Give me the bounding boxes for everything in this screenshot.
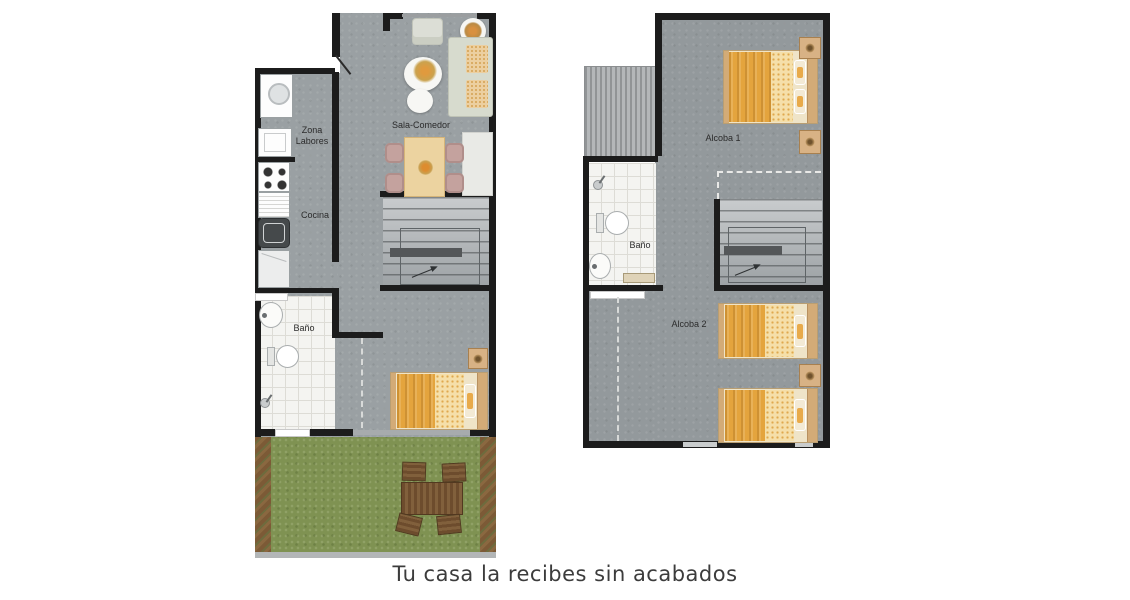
bed-single-alcoba2 [718, 388, 818, 443]
wall-stairs-left [714, 199, 720, 291]
nightstand [799, 364, 821, 387]
nightstand-knob [806, 44, 815, 53]
nightstand [799, 37, 821, 59]
label-bano-floor1: Baño [293, 323, 314, 334]
bed-sheet [765, 305, 794, 357]
bed-footboard [391, 373, 396, 429]
wall-garden [255, 429, 275, 436]
sofa [448, 37, 493, 117]
bed-headboard [477, 373, 487, 429]
dining-chair [445, 173, 464, 193]
bed-pillow [794, 399, 806, 431]
nightstand-knob [806, 138, 815, 147]
bed-blanket [729, 52, 771, 122]
floor-plan-sheet: Zona Labores Sala-Comedor Cocina Baño [0, 0, 1130, 600]
bed-sheet [771, 52, 793, 122]
label-zona-labores: Zona Labores [296, 125, 329, 147]
side-table [407, 89, 433, 113]
wall-stairs-bottom [714, 285, 830, 291]
wall-bath2-top [583, 156, 658, 162]
nightstand [468, 348, 488, 369]
bed-pillow [794, 315, 806, 347]
wall-top [655, 13, 830, 20]
kitchen-sink [258, 218, 290, 248]
bath1-door-opening [255, 293, 288, 301]
wall-right-outer [823, 13, 830, 447]
bath1-shower [258, 392, 274, 412]
garden-soil-right [480, 437, 496, 557]
wall-stairs-bottom [380, 285, 493, 291]
toilet-tank [267, 347, 275, 366]
bed-sheet [435, 374, 464, 428]
wall-left-lower [583, 291, 589, 447]
kitchen-counter [258, 192, 290, 218]
stair-void-dashed [717, 171, 821, 199]
bath2-faucet [592, 264, 597, 269]
closet2-dashed-line [617, 297, 619, 441]
nightstand [799, 130, 821, 154]
pillow-accent [797, 408, 803, 423]
wall-bath2-left [583, 156, 589, 291]
garden-door-opening [275, 429, 310, 437]
garden-edge-path [255, 552, 496, 558]
wall-bedroom1-partition [332, 332, 383, 338]
bed-footboard [719, 304, 724, 358]
bath2-shower [591, 173, 607, 193]
label-alcoba-2: Alcoba 2 [671, 319, 706, 330]
bed-blanket [397, 374, 435, 428]
toilet-bowl [605, 211, 629, 235]
front-window [402, 14, 478, 17]
bed-sheet [765, 390, 794, 441]
pillow-accent [797, 324, 803, 339]
sofa-cushion [466, 80, 488, 108]
coffee-table [404, 57, 442, 91]
stairs-rail [728, 227, 806, 283]
alcoba2-window [683, 442, 717, 447]
centerpiece [418, 160, 433, 175]
bed-blanket [725, 390, 765, 441]
bath1-toilet [267, 345, 300, 368]
dining-chair [445, 143, 464, 163]
dining-table [404, 137, 445, 197]
bed-double-alcoba1 [723, 50, 818, 124]
pillow-accent [797, 67, 803, 79]
nightstand-knob [474, 354, 483, 363]
outdoor-chair [442, 462, 467, 482]
armchair [412, 18, 443, 45]
floor-plan-2: Alcoba 1 Baño Alcoba 2 [583, 13, 830, 450]
bath1-faucet [262, 313, 267, 318]
pillow-accent [467, 393, 473, 409]
wall-alcoba1-left [655, 13, 662, 156]
bed-single-floor1 [390, 372, 488, 430]
toilet-tank [596, 213, 604, 233]
label-sala-comedor: Sala-Comedor [392, 120, 450, 131]
fridge-door-line [261, 253, 286, 262]
outdoor-chair [402, 462, 427, 482]
alcoba2-floor [587, 289, 657, 447]
wall-entry [332, 13, 340, 57]
stairs-floor2 [718, 199, 822, 285]
bath2-sink [589, 253, 611, 279]
toilet-bowl [276, 345, 299, 368]
wall-garden [310, 429, 353, 436]
outdoor-chair [436, 514, 462, 535]
wall-kitchen-hall [332, 72, 339, 262]
label-bano-floor2: Baño [629, 240, 650, 251]
label-cocina: Cocina [301, 210, 329, 221]
dining-chair [385, 173, 404, 193]
label-zona-line2: Labores [296, 136, 329, 147]
bed-footboard [719, 389, 724, 442]
pillow-accent [797, 96, 803, 108]
washing-machine [260, 74, 293, 118]
sofa-cushion [466, 45, 488, 73]
closet1-dashed-line [361, 338, 363, 428]
wall-bath1-right [332, 288, 339, 338]
dining-chair [385, 143, 404, 163]
label-zona-line1: Zona [296, 125, 329, 136]
roof-over-entrance [584, 66, 658, 158]
stove [258, 162, 290, 192]
bath1-sink [259, 302, 283, 328]
washer-drum [268, 83, 290, 105]
floor-plan-1: Zona Labores Sala-Comedor Cocina Baño [255, 10, 496, 560]
bed-headboard [807, 304, 817, 358]
stairs-floor1 [383, 197, 491, 287]
flowers [413, 59, 437, 83]
bed-headboard [807, 389, 817, 442]
bed-pillow [794, 89, 806, 114]
nightstand-knob [806, 371, 815, 380]
sink-basin [263, 223, 285, 243]
tv-cabinet [462, 132, 493, 196]
wall [383, 13, 390, 31]
fridge [258, 250, 290, 288]
bed-pillow [464, 384, 476, 418]
bed-headboard [807, 51, 817, 123]
outdoor-table [401, 482, 463, 515]
patio-sliding-door [353, 430, 470, 435]
garden-soil-left [255, 437, 271, 557]
wall-garden [470, 429, 496, 436]
bed-single-alcoba2 [718, 303, 818, 359]
bath2-toilet [596, 211, 629, 235]
label-alcoba-1: Alcoba 1 [705, 133, 740, 144]
bed-pillow [794, 60, 806, 85]
stairs-landing-edge [724, 246, 782, 255]
cabinet-door-line [264, 133, 286, 152]
bed-blanket [725, 305, 765, 357]
utility-cabinet [258, 128, 292, 157]
caption: Tu casa la recibes sin acabados [0, 562, 1130, 586]
bath2-shelf [623, 273, 655, 283]
stairs-landing-edge [390, 248, 462, 257]
